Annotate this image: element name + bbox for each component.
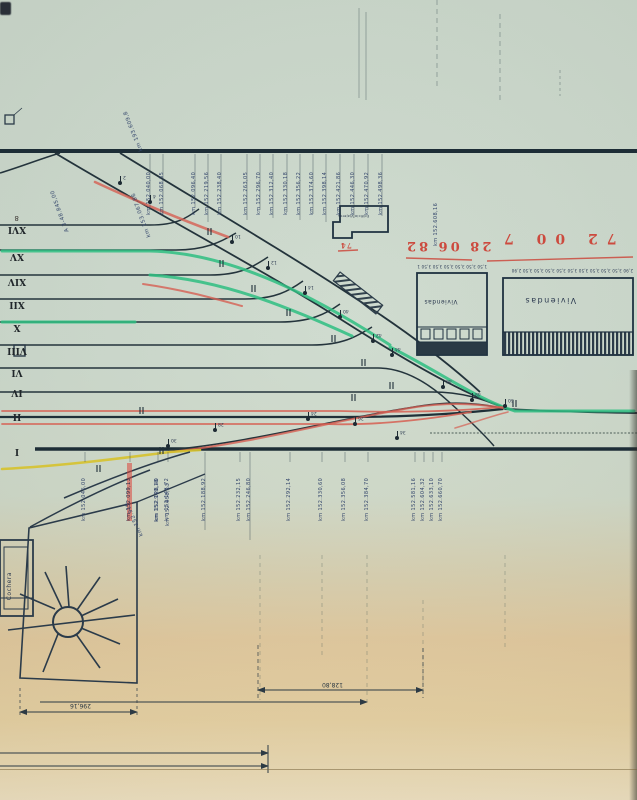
switch-stem	[355, 417, 356, 423]
ladder-diagonals	[55, 153, 508, 409]
km-label-bottom: km 152.356,08	[342, 463, 347, 521]
km-label-bottom: km 152.330,60	[319, 463, 324, 521]
red-date-note-right: 72 00 7	[495, 230, 616, 246]
km-label-top: km 152.296,70	[257, 157, 262, 215]
km-label-top: km 152.330,18	[284, 157, 289, 215]
km-label-top: km 152.312,40	[270, 157, 275, 215]
switch-stem	[150, 195, 151, 201]
km-label-bottom: km 152.384,70	[365, 463, 370, 521]
km-label-bottom: km 152.581,16	[412, 463, 417, 521]
switch-stem	[120, 176, 121, 182]
km-label-top: km 152.068,35	[160, 157, 165, 215]
km-label-top: km 152.238,40	[218, 157, 223, 215]
switch-number: 12	[271, 259, 277, 264]
switch-number: 50	[508, 397, 514, 402]
switch-number: 42	[376, 332, 382, 337]
km-label-top: km 152.498,36	[379, 157, 384, 215]
mid-building	[417, 273, 487, 355]
track-number-label: XV	[0, 251, 34, 261]
scanned-track-plan: 28 06 82 72 00 7 74 128,80 296,16 Vivien…	[0, 0, 637, 800]
km-label-misc: km 152.958,13	[166, 476, 171, 526]
switch-stem	[168, 439, 169, 445]
track-number-label: VIII	[0, 345, 34, 355]
switch-number: 14	[308, 284, 314, 289]
red-date-note-left: 28 06 82	[404, 238, 491, 253]
switch-number: 28	[218, 421, 224, 426]
switch-stem	[232, 235, 233, 241]
mid-building-label: Viviendas	[424, 298, 457, 305]
switch-number: 2	[123, 174, 126, 179]
km-label-top: km 152.374,60	[310, 157, 315, 215]
switch-stem	[392, 348, 393, 354]
paper-fold-line	[0, 769, 637, 770]
km-label-top: km 152.219,56	[205, 157, 210, 215]
track-number-label: XVI	[0, 224, 34, 234]
top-label-leaders	[150, 154, 382, 222]
dimension-lines	[0, 645, 423, 773]
dimension-128: 128,80	[322, 681, 343, 688]
km-label-bottom: km 152.604,32	[421, 463, 426, 521]
switch-stem	[268, 261, 269, 267]
switch-number: 24	[311, 410, 317, 415]
km-label-top: km 152.446,30	[351, 157, 356, 215]
track-number-label: IV	[0, 387, 34, 397]
km-label-top: km 152.421,86	[337, 157, 342, 215]
km-label-top: km 152.398,14	[323, 157, 328, 215]
switch-number: 34	[400, 429, 406, 434]
km-label-top: km 152.040,00	[147, 157, 152, 215]
scan-edge-shadow	[629, 370, 637, 800]
red-small-note: 74	[340, 241, 352, 250]
km-label-bottom: km 152.633,10	[430, 463, 435, 521]
switch-number: 46	[446, 378, 452, 383]
switch-stem	[305, 286, 306, 292]
switch-stem	[215, 423, 216, 429]
km-label-misc: km 152.608,16	[434, 196, 439, 246]
switch-number: 4	[153, 193, 156, 198]
track-number-label: XIV	[0, 276, 34, 286]
construction-lines-top	[359, 0, 560, 104]
km-label-bottom: km 152.232,15	[237, 463, 242, 521]
km-label-bottom: km 152.246,80	[247, 463, 252, 521]
switch-stem	[373, 334, 374, 340]
switch-number: 40	[343, 308, 349, 313]
km-label-misc: km 152.940,18	[155, 472, 160, 522]
switch-number: 30	[171, 437, 177, 442]
construction-lines-bottom	[260, 555, 505, 702]
km-label-top: km 152.470,92	[365, 157, 370, 215]
viviendas-building	[503, 278, 633, 355]
km-label-top: km 152.356,22	[297, 157, 302, 215]
switch-number: 44	[395, 346, 401, 351]
track-number-label: X	[0, 322, 34, 332]
km-label-bottom: km 152.188,92	[202, 463, 207, 521]
dimension-chain-viviendas: 2,90 3,50 3,50 3,50 3,50 3,50 3,50 3,50 …	[503, 268, 633, 273]
km-label-bottom: km 152.292,14	[287, 463, 292, 521]
cochera-label: Cochera	[6, 572, 13, 600]
switch-stem	[340, 310, 341, 316]
dimension-296: 296,16	[70, 702, 91, 709]
dimension-chain-mid: 1,50 3,50 3,50 3,50 3,50 3,50 1,50	[417, 264, 487, 269]
km-label-bottom: km 152.660,70	[439, 463, 444, 521]
km-label-top: km 152.263,05	[244, 157, 249, 215]
track-number-label: I	[0, 446, 34, 456]
switch-number: 48	[475, 391, 481, 396]
angled-platform	[333, 272, 382, 314]
switch-stem	[472, 393, 473, 399]
scan-corner-blotch	[0, 2, 11, 15]
viviendas-label: Viviendas	[524, 296, 576, 305]
stray-mark-eight: 8	[14, 214, 19, 222]
switch-number: 26	[358, 415, 364, 420]
track-number-label: XII	[0, 299, 34, 309]
track-number-label: II	[0, 411, 34, 421]
switch-number: 10	[235, 233, 241, 238]
km-label-bottom: km 152.046,00	[82, 463, 87, 521]
switch-stem	[308, 412, 309, 418]
turntable-area	[0, 452, 205, 683]
track-linework	[0, 0, 637, 800]
track-number-label: VI	[0, 367, 34, 377]
switch-stem	[397, 431, 398, 437]
switch-stem	[443, 380, 444, 386]
km-label-top: km 152.096,40	[192, 157, 197, 215]
switch-stem	[505, 399, 506, 405]
